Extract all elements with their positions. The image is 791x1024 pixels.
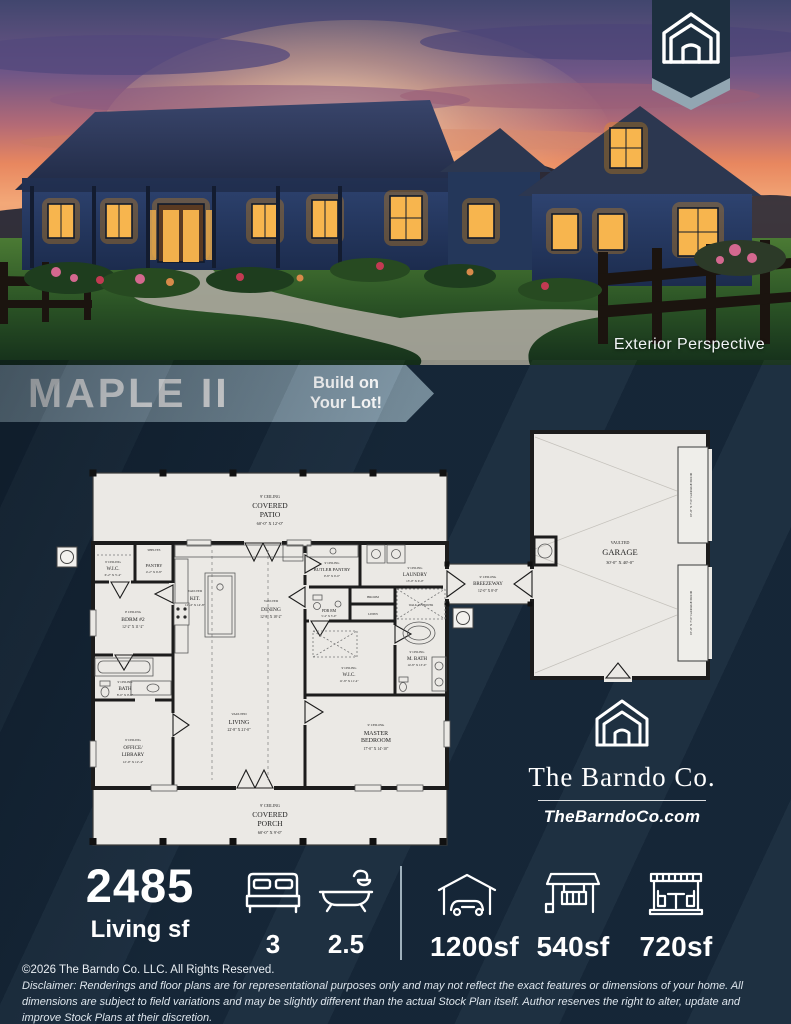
svg-text:12'-0" X 8'-0": 12'-0" X 8'-0" xyxy=(478,589,499,593)
svg-text:VAULTED: VAULTED xyxy=(611,540,630,545)
svg-text:BDRM #2: BDRM #2 xyxy=(121,617,145,623)
svg-text:OFFICE/: OFFICE/ xyxy=(123,745,143,751)
svg-text:9' CEILING: 9' CEILING xyxy=(342,666,358,670)
baths-stat: 2.5 xyxy=(311,864,381,960)
svg-text:22'-8" X 21'-0": 22'-8" X 21'-0" xyxy=(227,728,250,732)
shelves-label: SHELVES xyxy=(148,548,161,552)
svg-text:11'-8" X 11'-4": 11'-8" X 11'-4" xyxy=(339,679,359,683)
brand-divider xyxy=(538,800,706,801)
title-banner: MAPLE II Build on Your Lot! xyxy=(0,365,791,422)
svg-text:VAULTED: VAULTED xyxy=(188,589,203,593)
svg-text:PDR RM: PDR RM xyxy=(322,609,337,613)
porch-sf-value: 540sf xyxy=(536,931,610,963)
svg-text:12'-8" X 18'-2": 12'-8" X 18'-2" xyxy=(260,615,282,619)
copyright-text: ©2026 The Barndo Co. LLC. All Rights Res… xyxy=(22,964,777,976)
bed-icon xyxy=(241,868,305,914)
svg-text:4'-2" X 6'-8": 4'-2" X 6'-8" xyxy=(146,570,163,574)
brand-block: The Barndo Co. TheBarndoCo.com xyxy=(512,693,732,827)
svg-text:BREEZEWAY: BREEZEWAY xyxy=(473,582,503,587)
brand-url[interactable]: TheBarndoCo.com xyxy=(512,807,732,827)
svg-text:9' CEILING: 9' CEILING xyxy=(408,566,424,570)
svg-text:LIVING: LIVING xyxy=(229,720,250,726)
svg-text:BUTLER PANTRY: BUTLER PANTRY xyxy=(314,567,351,572)
svg-text:PORCH: PORCH xyxy=(257,819,283,828)
living-sf-stat: 2485 Living sf xyxy=(70,862,210,944)
porch-swing-icon xyxy=(542,870,604,918)
linen-label: LINEN xyxy=(368,612,378,616)
beds-stat: 3 xyxy=(238,868,308,960)
svg-text:60'-0" X 12'-0": 60'-0" X 12'-0" xyxy=(257,521,284,526)
svg-text:30'-0" X 40'-0": 30'-0" X 40'-0" xyxy=(606,560,634,565)
patio-ceiling-label: 9' CEILING xyxy=(260,494,280,499)
garage-car-icon xyxy=(436,870,498,918)
build-on-your-lot-tag: Build on Your Lot! xyxy=(296,373,396,413)
svg-text:VAULTED: VAULTED xyxy=(231,712,247,716)
svg-text:6'-2" X 5'-4": 6'-2" X 5'-4" xyxy=(105,573,122,577)
stats-divider xyxy=(400,866,402,960)
garage-sf-stat: 1200sf xyxy=(430,870,504,963)
svg-text:9' CEILING: 9' CEILING xyxy=(105,560,121,564)
garage-door-label: 16'-0" X 7'-0" GARAGE DOOR xyxy=(689,590,693,635)
svg-text:12'-4" X 14'-8": 12'-4" X 14'-8" xyxy=(185,603,206,607)
svg-text:COVERED: COVERED xyxy=(252,810,288,819)
brand-name: The Barndo Co. xyxy=(512,762,732,793)
garage-sf-value: 1200sf xyxy=(430,931,504,963)
living-sf-value: 2485 xyxy=(70,862,210,909)
svg-text:9' CEILING: 9' CEILING xyxy=(260,803,280,808)
svg-text:12'-0" X 12'-4": 12'-0" X 12'-4" xyxy=(123,760,144,764)
patio-table-icon xyxy=(645,870,707,918)
svg-text:DINING: DINING xyxy=(261,607,281,613)
svg-text:VAULTED: VAULTED xyxy=(264,599,279,603)
svg-text:13'-0" X 6'-0": 13'-0" X 6'-0" xyxy=(406,579,424,583)
patio-sf-stat: 720sf xyxy=(639,870,713,963)
shower-note: WALK-IN SHOWER xyxy=(409,604,434,607)
badge-pennant xyxy=(652,0,730,116)
svg-text:LAUNDRY: LAUNDRY xyxy=(403,573,428,578)
svg-text:W.I.C.: W.I.C. xyxy=(106,567,119,572)
svg-text:9' CEILING: 9' CEILING xyxy=(325,561,341,565)
beds-count: 3 xyxy=(238,929,308,960)
svg-text:9' CEILING: 9' CEILING xyxy=(125,738,141,742)
photo-caption: Exterior Perspective xyxy=(614,336,765,354)
footer: ©2026 The Barndo Co. LLC. All Rights Res… xyxy=(22,964,777,1024)
flyer-page: Exterior Perspective MAPLE II Build on Y… xyxy=(0,0,791,1024)
svg-text:9' CEILING: 9' CEILING xyxy=(125,610,142,614)
svg-text:COVERED: COVERED xyxy=(252,501,288,510)
svg-text:9' CEILING: 9' CEILING xyxy=(410,650,426,654)
svg-text:PANTRY: PANTRY xyxy=(146,563,164,568)
bathtub-icon xyxy=(314,864,378,914)
svg-text:LIBRARY: LIBRARY xyxy=(122,752,145,758)
main-house-silhouette xyxy=(15,100,762,286)
svg-text:W.I.C.: W.I.C. xyxy=(342,673,355,678)
svg-text:9' CEILING: 9' CEILING xyxy=(480,575,497,579)
baths-count: 2.5 xyxy=(311,929,381,960)
svg-text:60'-0" X 9'-0": 60'-0" X 9'-0" xyxy=(258,830,283,835)
svg-text:8'-0" X 9'-0": 8'-0" X 9'-0" xyxy=(117,693,134,697)
svg-text:9' CEILING: 9' CEILING xyxy=(118,680,134,684)
svg-text:17'-0" X 14'-10": 17'-0" X 14'-10" xyxy=(364,747,389,751)
front-door xyxy=(150,204,212,262)
disclaimer-text: Disclaimer: Renderings and floor plans a… xyxy=(22,979,777,1024)
svg-text:M. BATH: M. BATH xyxy=(407,657,427,662)
living-sf-label: Living sf xyxy=(70,916,210,944)
broom-label: BROOM xyxy=(367,595,379,599)
svg-text:BATH: BATH xyxy=(118,687,131,692)
svg-text:KIT.: KIT. xyxy=(190,596,201,602)
svg-text:9' CEILING: 9' CEILING xyxy=(368,723,385,727)
svg-text:5'-4" X 5'-0": 5'-4" X 5'-0" xyxy=(321,614,337,618)
stats-bar: 2485 Living sf 3 xyxy=(0,858,791,958)
garage-door-label: 16'-0" X 7'-0" GARAGE DOOR xyxy=(689,472,693,517)
brand-badge xyxy=(652,0,730,116)
svg-text:BEDROOM: BEDROOM xyxy=(361,738,392,744)
plan-title: MAPLE II xyxy=(28,365,230,422)
barn-logo-icon xyxy=(587,693,657,749)
svg-text:PATIO: PATIO xyxy=(260,510,281,519)
svg-text:14'-8" X 13'-0": 14'-8" X 13'-0" xyxy=(407,663,427,667)
svg-text:MASTER: MASTER xyxy=(364,731,388,737)
svg-text:GARAGE: GARAGE xyxy=(602,547,637,557)
svg-text:9'-8" X 6'-0": 9'-8" X 6'-0" xyxy=(324,574,341,578)
svg-text:12'-2" X 11'-2": 12'-2" X 11'-2" xyxy=(122,625,144,629)
porch-sf-stat: 540sf xyxy=(536,870,610,963)
patio-sf-value: 720sf xyxy=(639,931,713,963)
